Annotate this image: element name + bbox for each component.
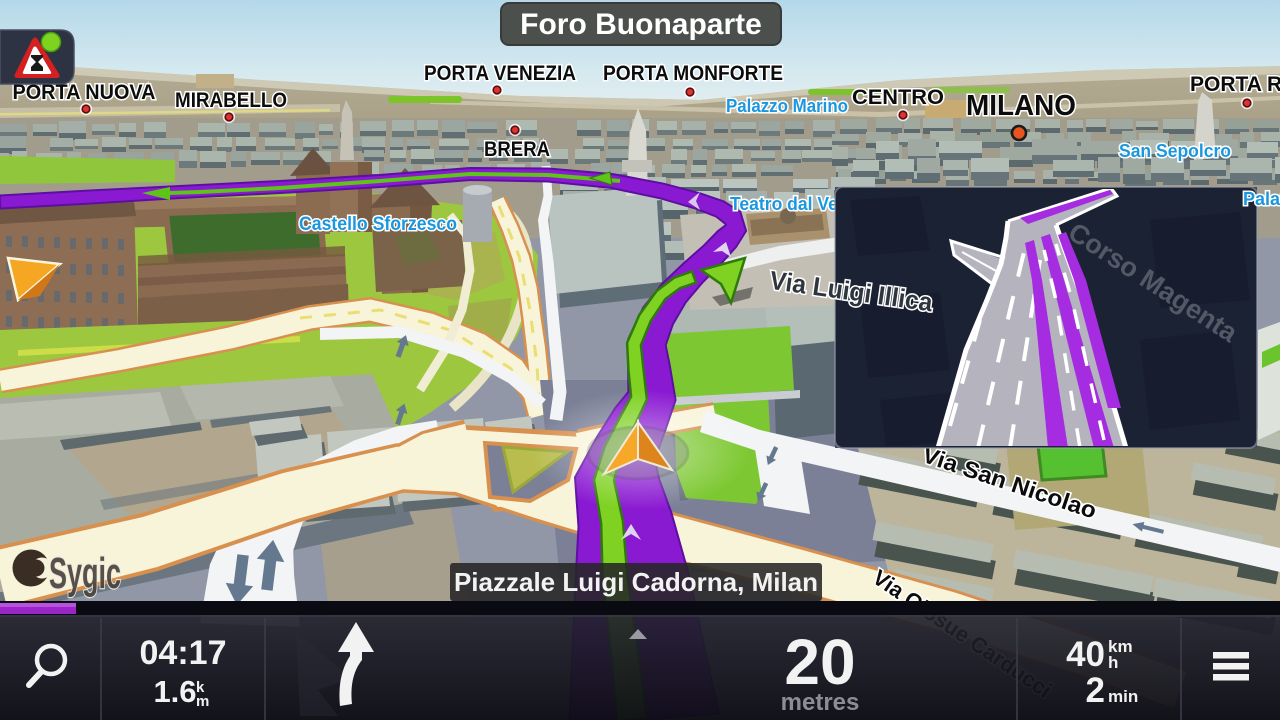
svg-text:PORTA RO: PORTA RO [1190,73,1280,96]
svg-text:2: 2 [1086,671,1105,710]
svg-text:PORTA MONFORTE: PORTA MONFORTE [603,62,783,85]
svg-text:1.6: 1.6 [153,674,196,709]
svg-text:m: m [196,693,209,710]
svg-text:04:17: 04:17 [140,634,227,672]
svg-text:h: h [1108,653,1118,672]
svg-text:MILANO: MILANO [966,90,1076,122]
svg-text:Palazzo Marino: Palazzo Marino [726,96,848,116]
svg-text:metres: metres [781,689,860,716]
svg-text:Piazzale Luigi Cadorna, Milan: Piazzale Luigi Cadorna, Milan [454,567,818,597]
svg-text:Sygic: Sygic [49,549,121,598]
svg-text:MIRABELLO: MIRABELLO [175,89,287,112]
svg-text:Castello Sforzesco: Castello Sforzesco [299,214,457,235]
svg-text:20: 20 [784,626,855,698]
svg-text:PORTA VENEZIA: PORTA VENEZIA [424,62,576,85]
svg-text:min: min [1108,687,1138,706]
svg-text:40: 40 [1066,635,1105,674]
svg-text:Foro Buonaparte: Foro Buonaparte [520,8,762,41]
svg-text:BRERA: BRERA [484,138,550,161]
svg-text:CENTRO: CENTRO [852,86,944,109]
svg-text:San Sepolcro: San Sepolcro [1119,141,1231,161]
svg-text:Palaz: Palaz [1243,189,1280,209]
